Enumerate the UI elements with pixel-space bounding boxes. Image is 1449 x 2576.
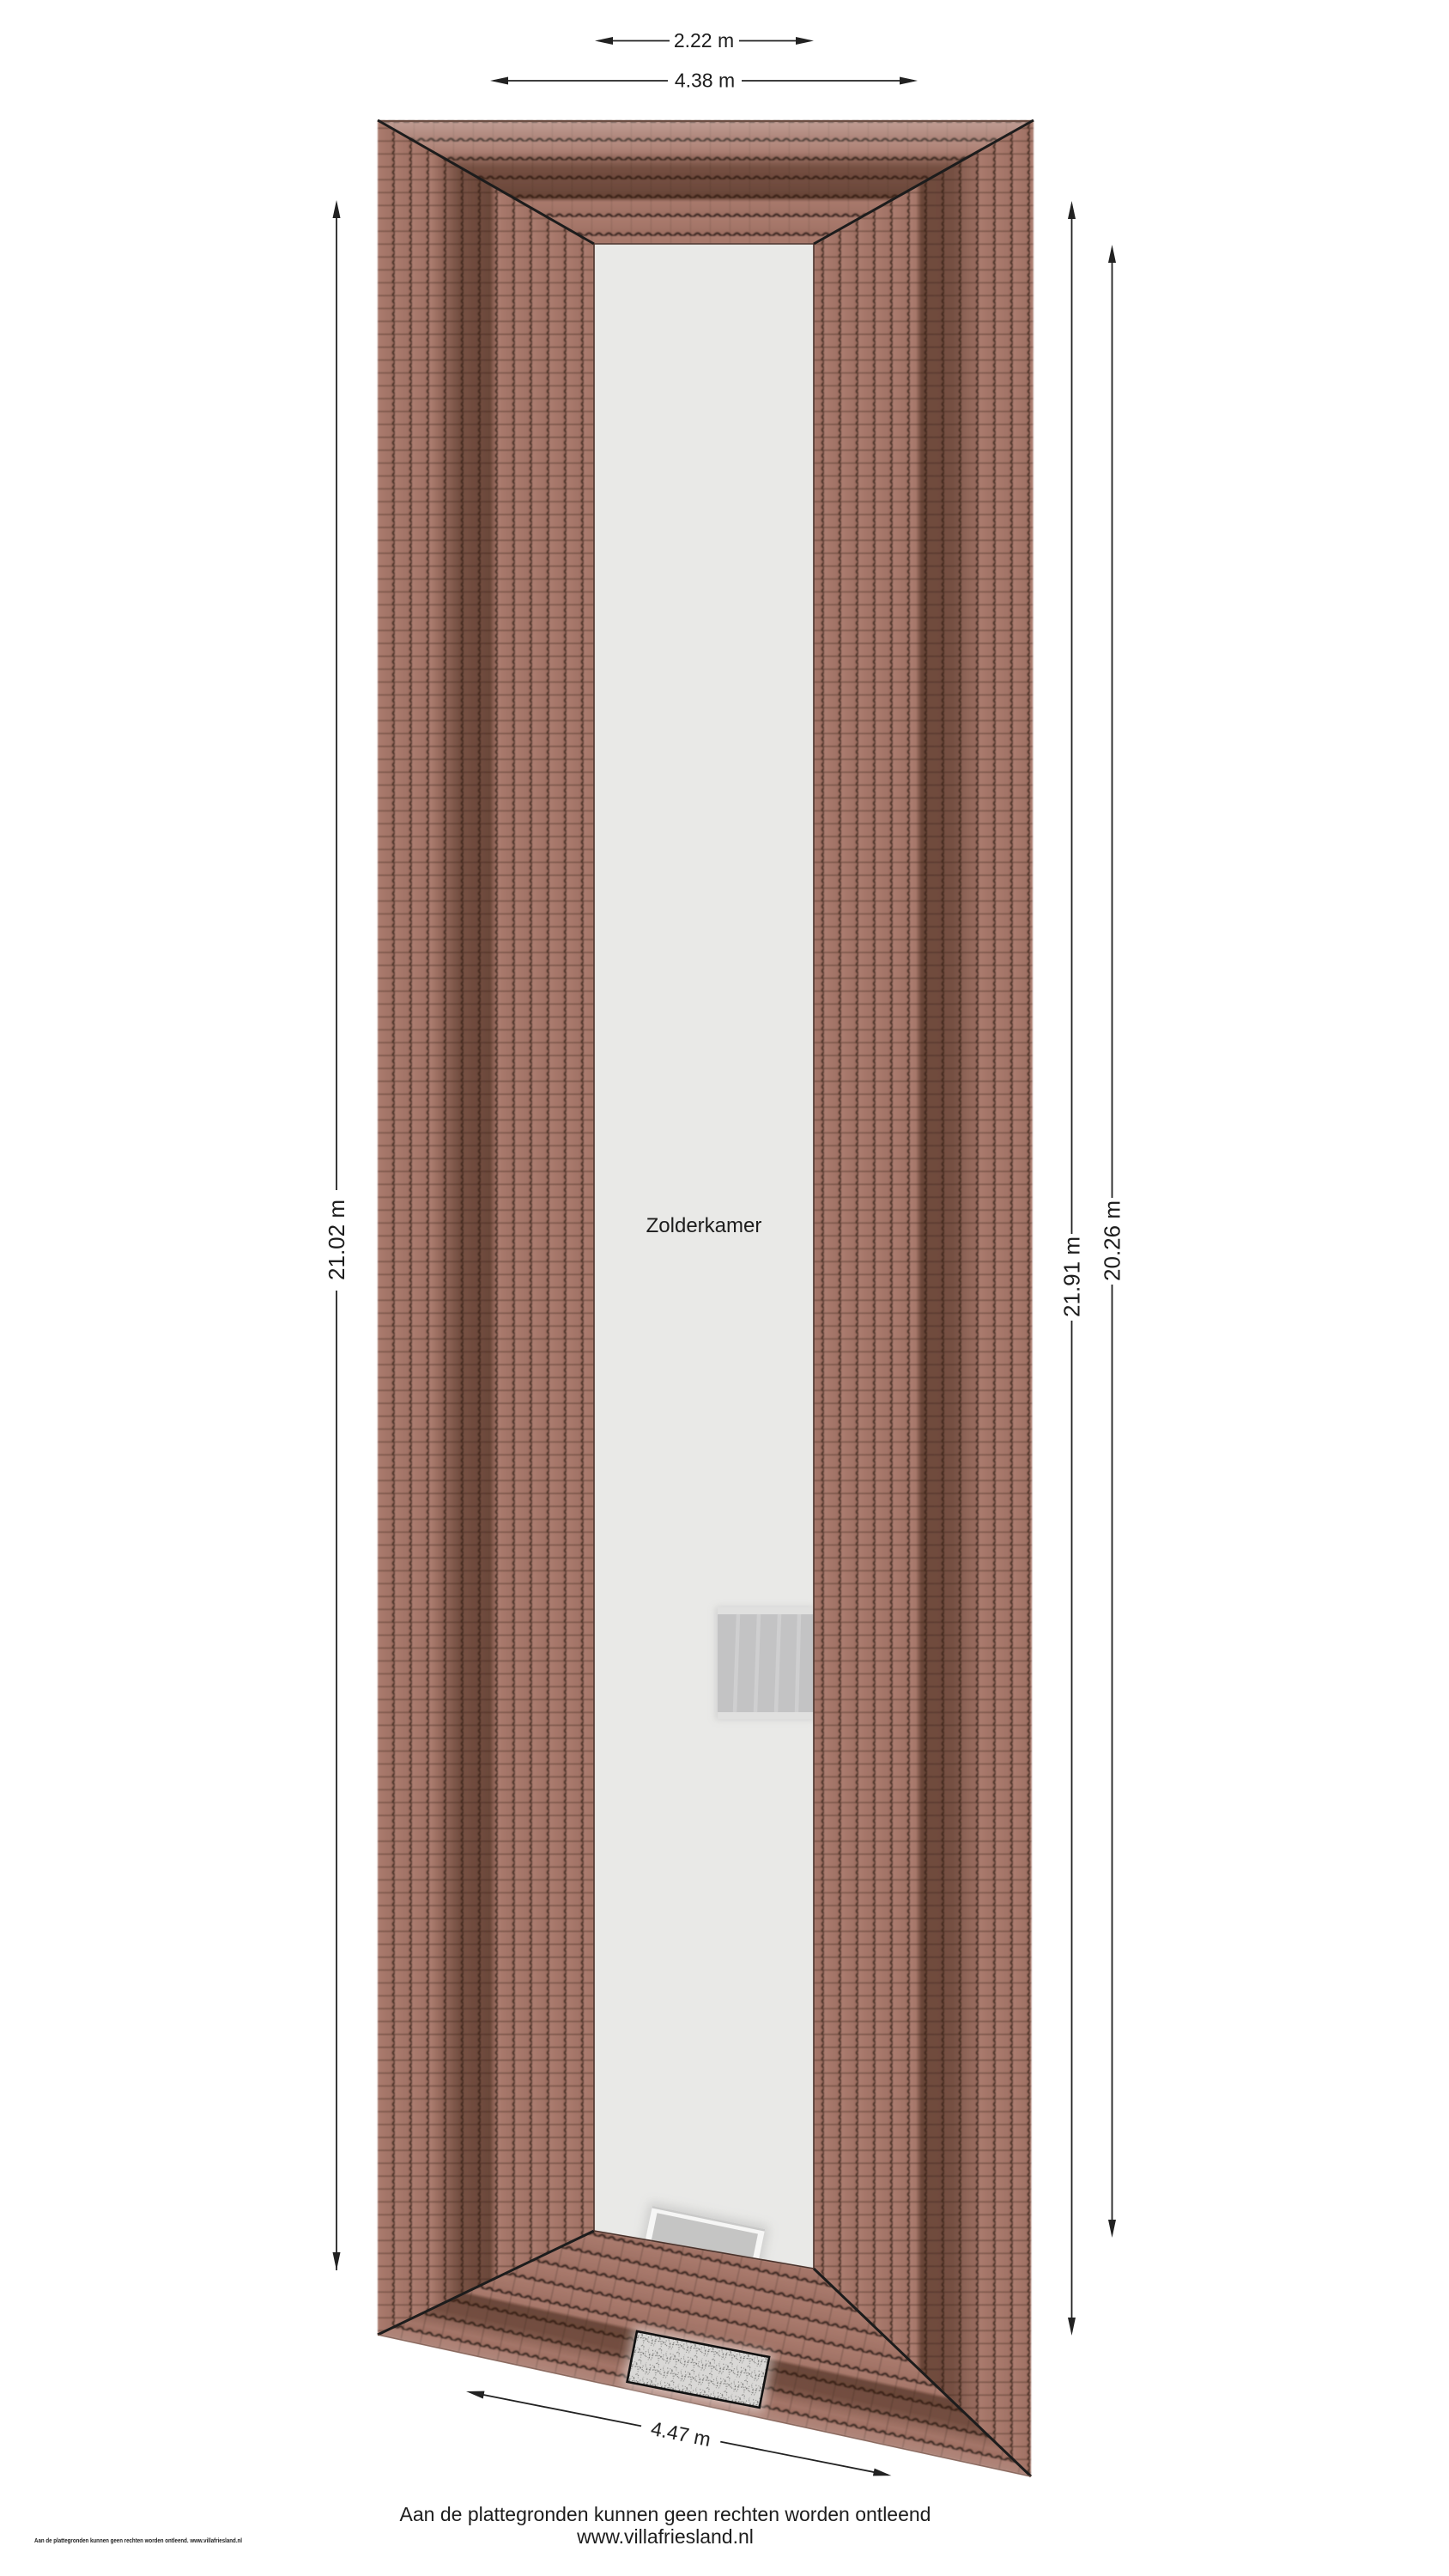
svg-text:Aan de plattegronden kunnen ge: Aan de plattegronden kunnen geen rechten… xyxy=(34,2537,242,2544)
svg-text:www.villafriesland.nl: www.villafriesland.nl xyxy=(576,2525,754,2548)
svg-text:Zolderkamer: Zolderkamer xyxy=(646,1214,762,1237)
svg-text:2.22 m: 2.22 m xyxy=(674,29,734,52)
svg-text:21.91 m: 21.91 m xyxy=(1059,1236,1085,1317)
svg-text:4.38 m: 4.38 m xyxy=(675,70,735,92)
svg-text:Aan de plattegronden kunnen ge: Aan de plattegronden kunnen geen rechten… xyxy=(400,2503,931,2525)
svg-text:20.26 m: 20.26 m xyxy=(1100,1200,1125,1281)
svg-text:21.02 m: 21.02 m xyxy=(324,1200,349,1280)
